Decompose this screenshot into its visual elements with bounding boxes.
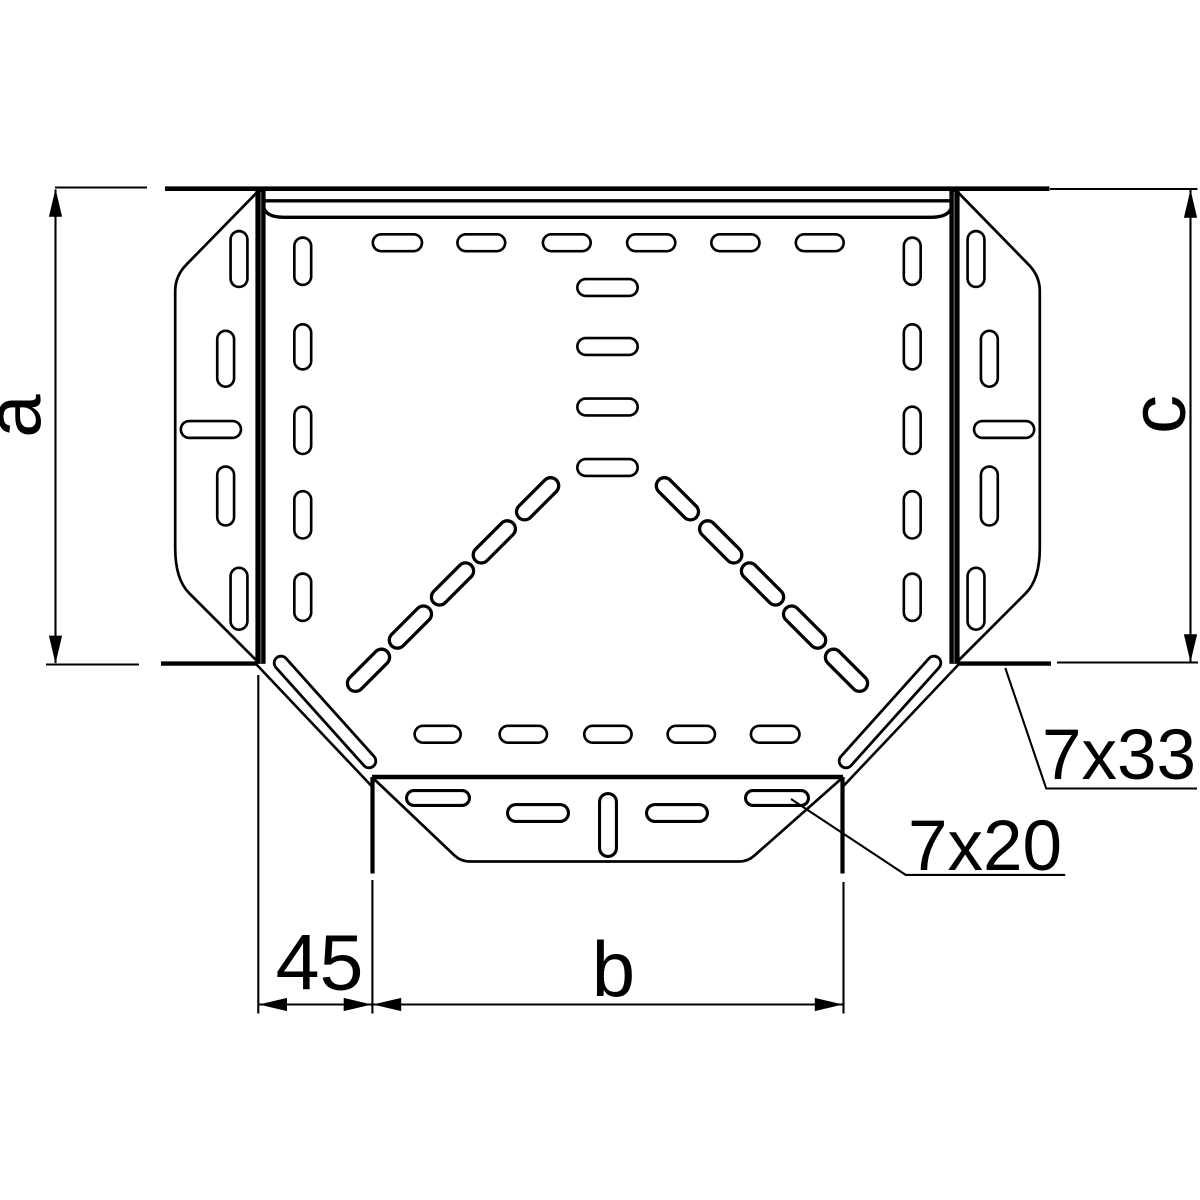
svg-text:7x20: 7x20: [908, 807, 1062, 886]
svg-text:7x33: 7x33: [1042, 716, 1196, 795]
svg-text:a: a: [0, 394, 57, 438]
svg-text:b: b: [592, 925, 635, 1013]
svg-text:45: 45: [276, 918, 364, 1007]
svg-text:c: c: [1114, 395, 1200, 434]
